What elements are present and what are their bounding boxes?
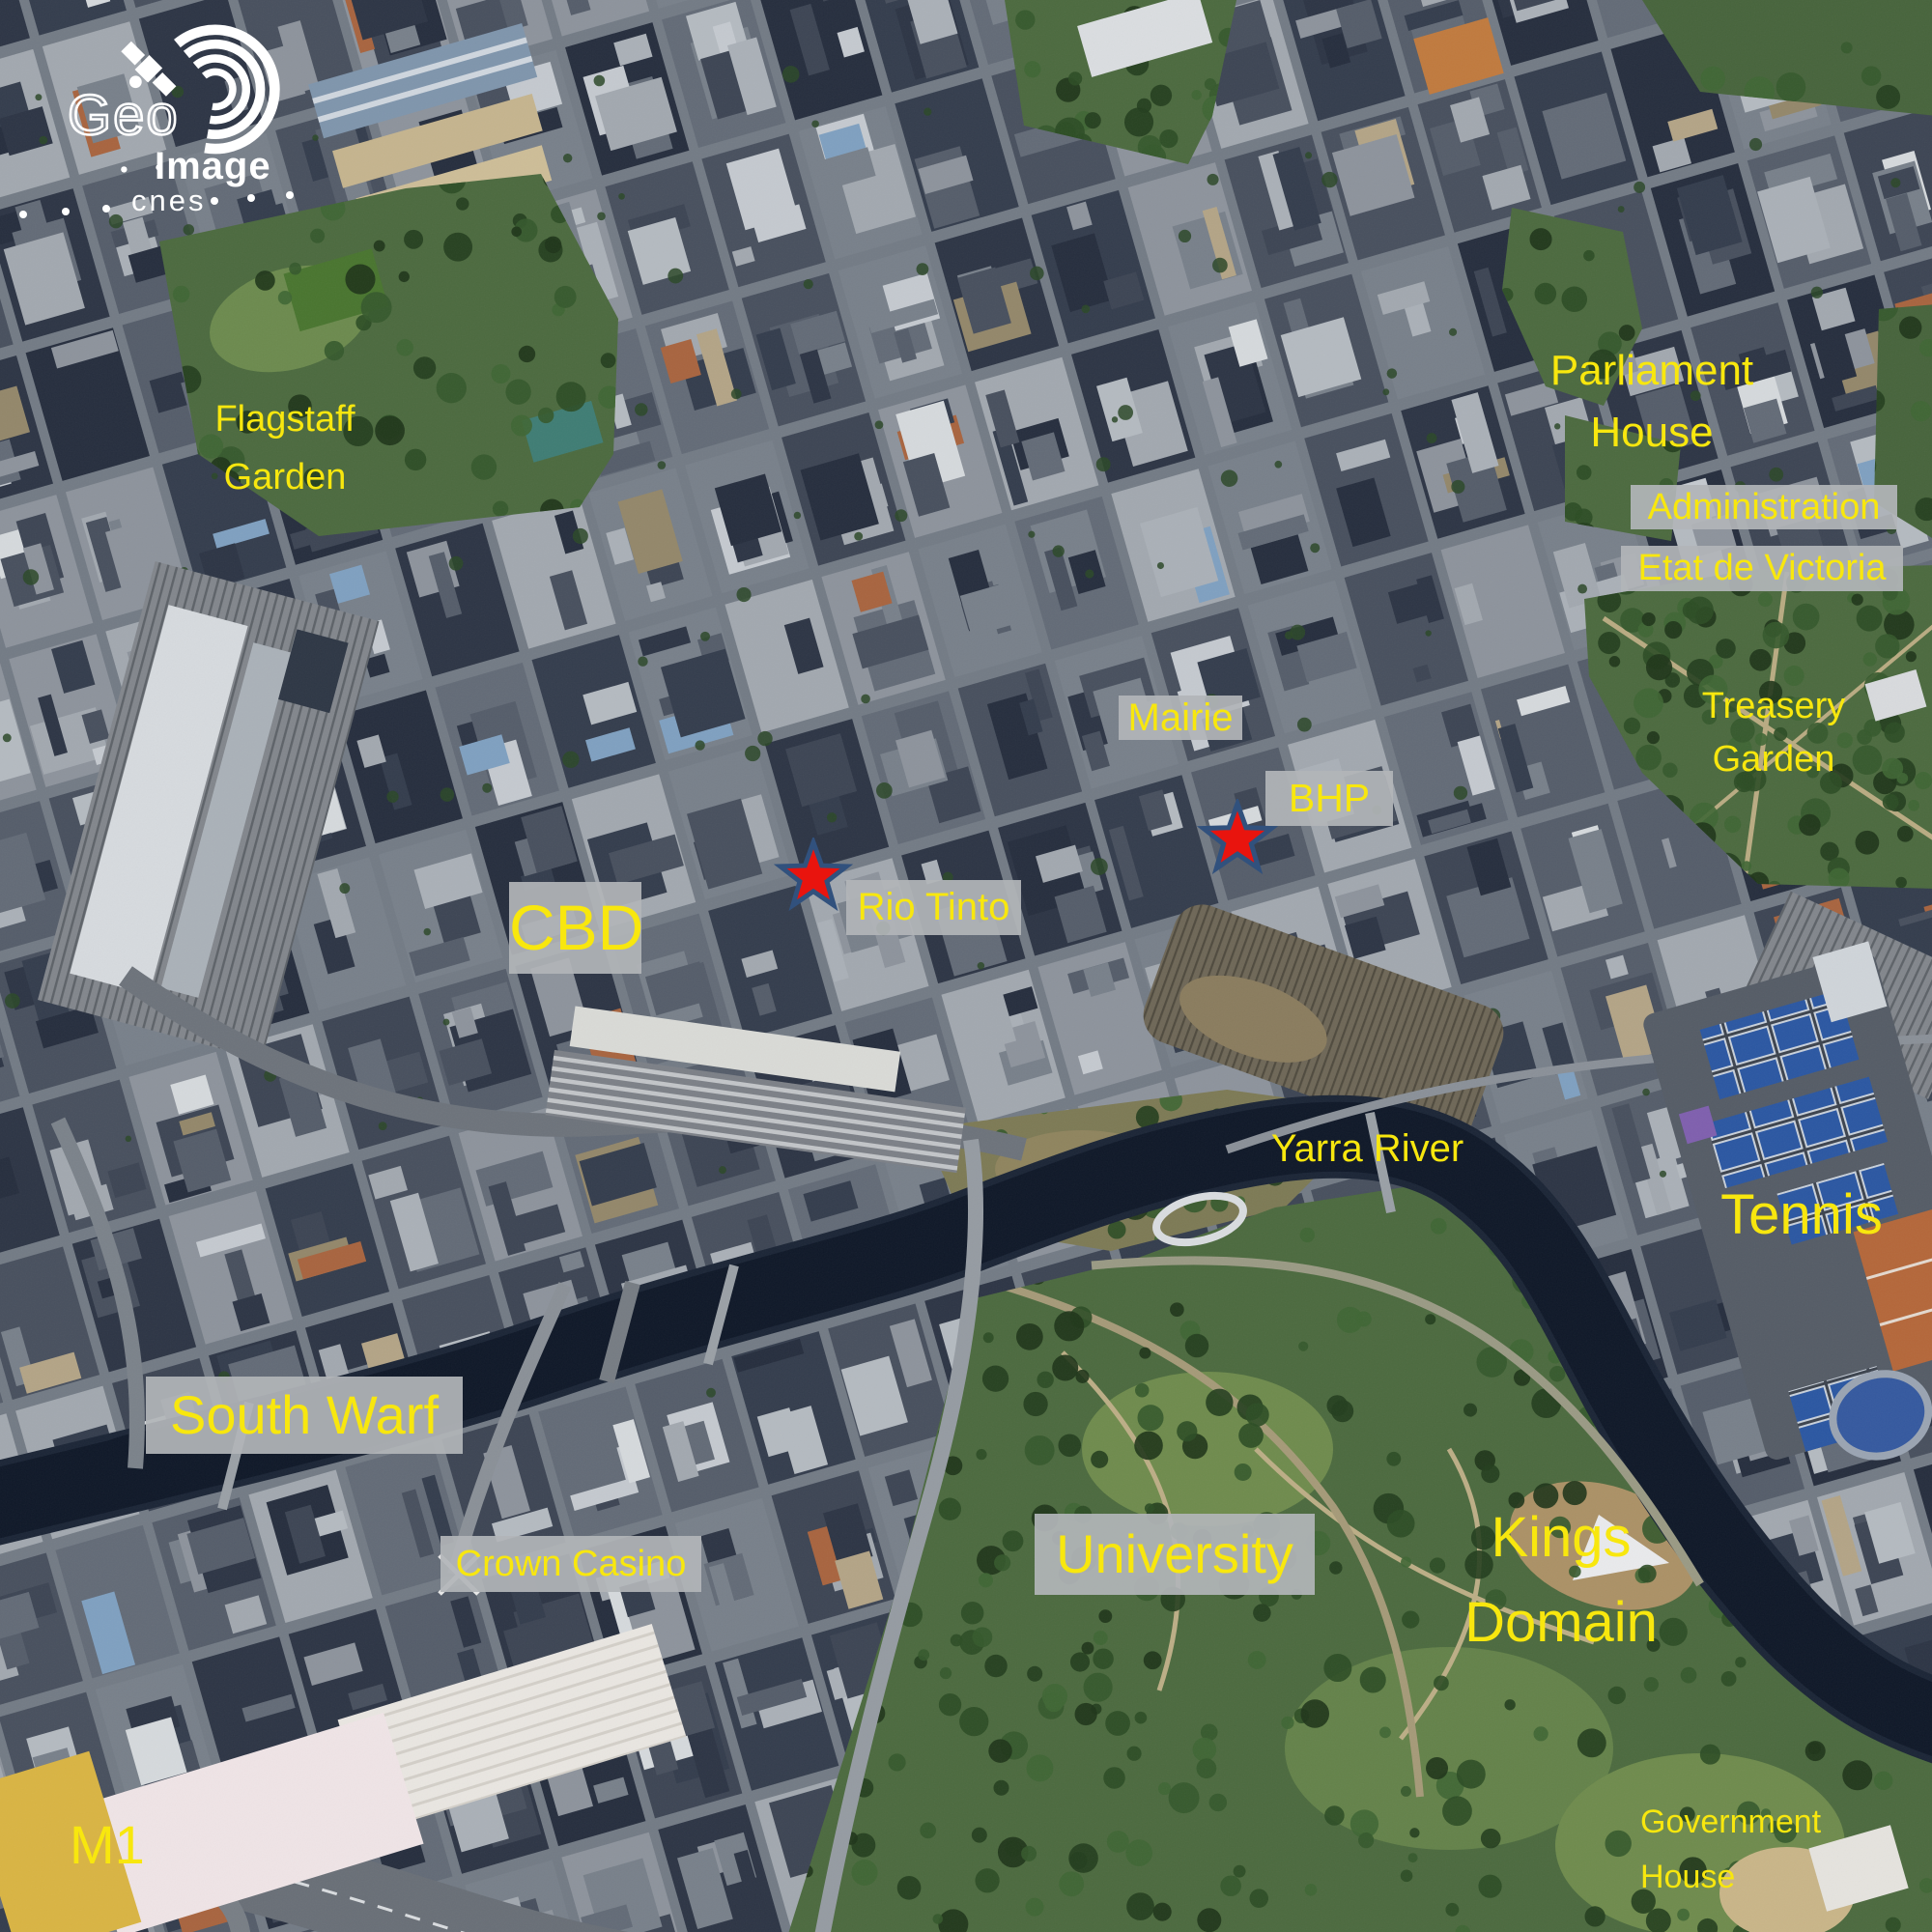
geoimage-logo: Geo Image cnes bbox=[10, 10, 328, 241]
label-line: M1 bbox=[70, 1816, 185, 1874]
label-line: Tennis bbox=[1705, 1184, 1898, 1246]
label-line: Domain bbox=[1440, 1580, 1682, 1665]
label-rio-tinto: Rio Tinto bbox=[846, 880, 1021, 935]
cnes-dots bbox=[10, 10, 328, 241]
label-cbd: CBD bbox=[509, 882, 641, 974]
label-treasery-garden: TreaseryGarden bbox=[1677, 680, 1870, 786]
label-bhp: BHP bbox=[1265, 771, 1393, 826]
label-line: House bbox=[1531, 402, 1773, 464]
label-line: Kings bbox=[1440, 1495, 1682, 1580]
label-line: BHP bbox=[1265, 771, 1393, 826]
label-tennis: Tennis bbox=[1705, 1184, 1898, 1246]
label-line: Crown Casino bbox=[440, 1536, 701, 1592]
label-line: Rio Tinto bbox=[846, 880, 1021, 935]
label-line: University bbox=[1035, 1514, 1315, 1595]
annotation-layer: FlagstaffGardenParliamentHouseAdministra… bbox=[0, 0, 1932, 1932]
rio-tinto-star bbox=[774, 838, 853, 922]
label-university: University bbox=[1035, 1514, 1315, 1595]
label-mairie: Mairie bbox=[1119, 696, 1242, 740]
label-line: Garden bbox=[1677, 733, 1870, 786]
label-line: House bbox=[1640, 1850, 1882, 1905]
label-line: Mairie bbox=[1119, 696, 1242, 740]
label-flagstaff-garden: FlagstaffGarden bbox=[193, 390, 377, 506]
label-line: Parliament bbox=[1531, 340, 1773, 402]
label-kings-domain: KingsDomain bbox=[1440, 1495, 1682, 1665]
label-government-house: GovernmentHouse bbox=[1640, 1795, 1882, 1905]
bhp-star bbox=[1197, 799, 1278, 885]
satellite-screenshot: FlagstaffGardenParliamentHouseAdministra… bbox=[0, 0, 1932, 1932]
label-line: Treasery bbox=[1677, 680, 1870, 733]
label-line: Etat de Victoria bbox=[1621, 546, 1903, 591]
label-line: Flagstaff bbox=[193, 390, 377, 448]
label-administration: Administration bbox=[1631, 485, 1897, 529]
label-line: Administration bbox=[1631, 485, 1897, 529]
label-parliament-house: ParliamentHouse bbox=[1531, 340, 1773, 464]
label-crown-casino: Crown Casino bbox=[440, 1536, 701, 1592]
label-line: South Warf bbox=[146, 1377, 463, 1454]
label-yarra-river: Yarra River bbox=[1264, 1126, 1471, 1171]
label-etat-de-victoria: Etat de Victoria bbox=[1621, 546, 1903, 591]
label-line: Garden bbox=[193, 448, 377, 506]
label-line: Yarra River bbox=[1264, 1126, 1471, 1171]
label-line: Government bbox=[1640, 1795, 1882, 1850]
label-line: CBD bbox=[509, 882, 641, 974]
label-south-warf: South Warf bbox=[146, 1377, 463, 1454]
label-m1: M1 bbox=[70, 1816, 185, 1874]
